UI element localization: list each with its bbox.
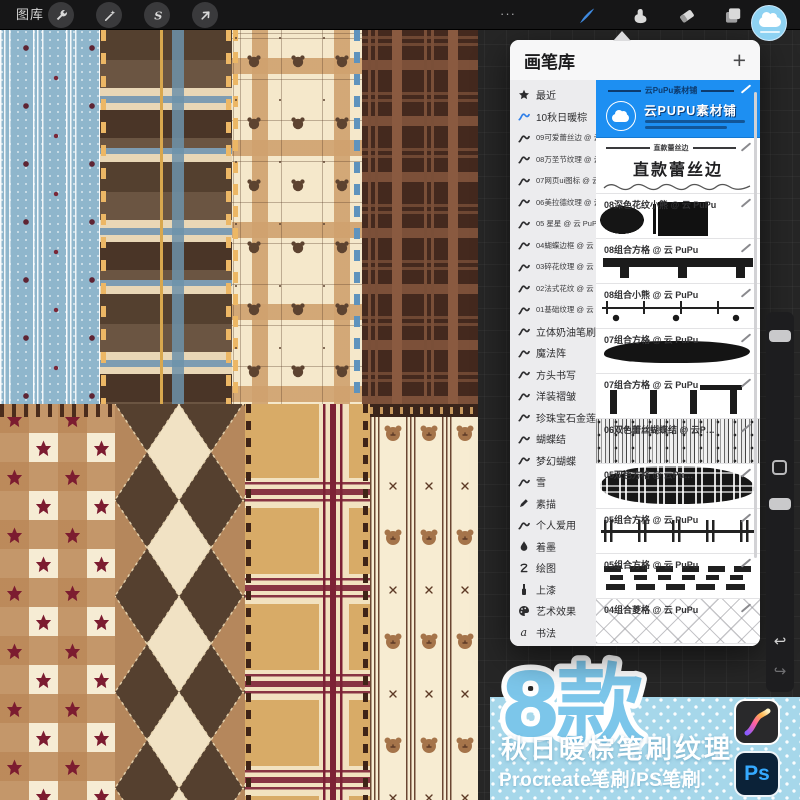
sidebar-item[interactable]: 立体奶油笔刷 xyxy=(510,321,596,343)
panel-body: 最近10秋日暖棕09可爱蕾丝边 @ 云 Pu…08万圣节纹理 @ 云 Pu…07… xyxy=(510,80,760,646)
fabric-tile-blue-lace-ribbon xyxy=(0,30,100,404)
sidebar-item-label: 雪 xyxy=(536,474,546,489)
sidebar-item[interactable]: 03碎花纹理 @ 云 PuPu xyxy=(510,256,596,278)
canvas[interactable] xyxy=(0,30,478,800)
redo-icon[interactable]: ↪ xyxy=(766,662,794,680)
bear-stripe-pattern-overlay xyxy=(370,404,478,800)
top-toolbar: 图库 S ··· xyxy=(0,0,800,30)
sidebar-item-label: 素描 xyxy=(536,496,556,511)
modify-button[interactable] xyxy=(772,460,787,475)
sidebar-item[interactable]: 素描 xyxy=(510,493,596,515)
featured-name: 云PUPU素材铺 xyxy=(644,100,737,119)
fabric-tile-tan-burgundy-plaid xyxy=(245,404,370,800)
brush-card[interactable]: 08组合小熊 @ 云 PuPu xyxy=(596,284,760,329)
brush-icon xyxy=(518,325,530,337)
sidebar-item-label: 书法 xyxy=(536,625,556,640)
sidebar-item-label: 最近 xyxy=(536,87,556,102)
sidebar-item-label: 10秋日暖棕 xyxy=(536,109,587,124)
ps-label: Ps xyxy=(744,762,770,786)
cloud-logo-text-line xyxy=(760,31,780,33)
sidebar-item[interactable]: 06美拉德纹理 @ 云 Pu… xyxy=(510,192,596,214)
featured-fineprint-line xyxy=(645,120,745,123)
lace-stroke-preview xyxy=(602,179,754,191)
brush-size-slider[interactable] xyxy=(769,330,791,342)
sidebar-item-label: 06美拉德纹理 @ 云 Pu… xyxy=(536,197,596,208)
sidebar-item[interactable]: 09可爱蕾丝边 @ 云 Pu… xyxy=(510,127,596,149)
selection-icon[interactable]: S xyxy=(144,2,170,28)
sidebar-item-label: 02法式花纹 @ 云 PuPu xyxy=(536,283,596,294)
brush-card-title: 06双色蕾丝蝴蝶结 @ 云P… xyxy=(604,423,715,436)
sidebar-item[interactable]: 07网页ui图标 @ 云 Pu… xyxy=(510,170,596,192)
brush-tool-icon[interactable] xyxy=(576,5,596,25)
sidebar-item[interactable]: 绘图 xyxy=(510,557,596,579)
svg-text:S: S xyxy=(154,8,162,22)
brush-icon xyxy=(518,390,530,402)
actions-wrench-icon[interactable] xyxy=(48,2,74,28)
brush-sidebar: 最近10秋日暖棕09可爱蕾丝边 @ 云 Pu…08万圣节纹理 @ 云 Pu…07… xyxy=(510,80,596,646)
smudge-tool-icon[interactable] xyxy=(630,5,650,25)
sidebar-item-label: 立体奶油笔刷 xyxy=(536,324,596,339)
brush-icon xyxy=(518,175,530,187)
brush-card[interactable]: 06双色蕾丝蝴蝶结 @ 云P… xyxy=(596,419,760,464)
sidebar-item-label: 魔法阵 xyxy=(536,345,566,360)
star-pattern-overlay xyxy=(0,404,115,800)
brush-card-title: 07组合方格 @ 云 PuPu xyxy=(604,378,698,391)
sidebar-item[interactable]: 10秋日暖棕 xyxy=(510,106,596,128)
lace-top-line: 直款蕾丝边 xyxy=(596,138,760,153)
photoshop-app-icon: Ps xyxy=(734,751,780,797)
sidebar-item-label: 艺术效果 xyxy=(536,603,576,618)
brush-list: 云PuPu素材铺云PUPU素材铺直款蕾丝边直款蕾丝边08深色花纹小熊 @ 云 P… xyxy=(596,80,760,646)
sidebar-item[interactable]: 雪 xyxy=(510,471,596,493)
brush-icon xyxy=(518,476,530,488)
calligraphy-icon xyxy=(518,626,530,638)
fabric-tile-brown-blue-stripe-plaid xyxy=(100,30,232,404)
brush-icon xyxy=(518,239,530,251)
sidebar-item-label: 09可爱蕾丝边 @ 云 Pu… xyxy=(536,132,596,143)
brush-card[interactable]: 05组合方格 @ 云 PuPu xyxy=(596,554,760,599)
cloud-icon xyxy=(759,17,781,27)
brush-icon xyxy=(518,368,530,380)
brush-icon xyxy=(518,519,530,531)
bear-pattern-overlay xyxy=(232,30,362,404)
panel-scrollbar[interactable] xyxy=(754,92,757,558)
sidebar-item-label: 08万圣节纹理 @ 云 Pu… xyxy=(536,154,596,165)
undo-icon[interactable]: ↩ xyxy=(766,632,794,650)
featured-title: 云PuPu素材铺 xyxy=(645,85,697,96)
brush-card[interactable]: 08深色花纹小熊 @ 云 PuPu xyxy=(596,194,760,239)
sidebar-item-label: 04蝴蝶边框 @ 云 PuPu xyxy=(536,240,596,251)
eraser-tool-icon[interactable] xyxy=(676,5,696,25)
cloud-logo xyxy=(606,101,636,131)
ink-icon xyxy=(518,540,530,552)
brush-card[interactable]: 05组合方格 @ 云 PuPu xyxy=(596,509,760,554)
brush-card[interactable]: 云PuPu素材铺云PUPU素材铺 xyxy=(596,80,760,138)
sidebar-controls: ↩ ↪ xyxy=(766,312,794,692)
brush-card[interactable]: 05双色方格 @ 云Pu… xyxy=(596,464,760,509)
brush-icon xyxy=(518,196,530,208)
panel-title: 画笔库 xyxy=(524,48,575,73)
brush-card-title: 08深色花纹小熊 @ 云 PuPu xyxy=(604,198,716,211)
sidebar-item[interactable]: 04蝴蝶边框 @ 云 PuPu xyxy=(510,235,596,257)
fabric-tile-bear-stripes xyxy=(370,404,478,800)
brush-card-title: 08组合方格 @ 云 PuPu xyxy=(604,243,698,256)
scribble-icon xyxy=(518,562,530,574)
paint-icon xyxy=(518,583,530,595)
brush-card[interactable]: 04组合菱格 @ 云 PuPu xyxy=(596,599,760,644)
popover-arrow xyxy=(613,31,631,41)
sidebar-item[interactable]: 02法式花纹 @ 云 PuPu xyxy=(510,278,596,300)
brush-card-title: 07组合方格 @ 云 PuPu xyxy=(604,333,698,346)
brush-icon xyxy=(518,261,530,273)
procreate-brushstroke xyxy=(747,711,768,733)
featured-fineprint-line xyxy=(645,126,727,129)
brush-card-title: 05双色方格 @ 云Pu… xyxy=(604,468,693,481)
sidebar-item-label: 05 星星 @ 云 PuPu 1 xyxy=(536,218,596,229)
brush-card-title: 05组合方格 @ 云 PuPu xyxy=(604,513,698,526)
brush-card-title: 05组合方格 @ 云 PuPu xyxy=(604,558,698,571)
brush-card-title: 04组合菱格 @ 云 PuPu xyxy=(604,603,698,616)
add-brush-button[interactable]: + xyxy=(733,50,746,70)
sidebar-item[interactable]: 着墨 xyxy=(510,536,596,558)
featured-top-line: 云PuPu素材铺 xyxy=(596,80,760,96)
sidebar-item[interactable]: 书法 xyxy=(510,622,596,644)
lace-big-title: 直款蕾丝边 xyxy=(596,156,760,180)
brush-card[interactable]: 07组合方格 @ 云 PuPu xyxy=(596,374,760,419)
sidebar-item[interactable]: 08万圣节纹理 @ 云 Pu… xyxy=(510,149,596,171)
procreate-app-icon xyxy=(734,699,780,745)
brush-icon xyxy=(518,153,530,165)
brush-icon xyxy=(518,132,530,144)
sidebar-item[interactable]: 方头书写 xyxy=(510,364,596,386)
brush-library-panel: 画笔库 + 最近10秋日暖棕09可爱蕾丝边 @ 云 Pu…08万圣节纹理 @ 云… xyxy=(510,40,760,646)
brush-card[interactable]: 08组合方格 @ 云 PuPu xyxy=(596,239,760,284)
sidebar-item[interactable]: 珍珠宝石金莲 xyxy=(510,407,596,429)
sidebar-item-label: 梦幻蝴蝶 xyxy=(536,453,576,468)
brush-opacity-slider[interactable] xyxy=(769,498,791,510)
layers-icon[interactable] xyxy=(722,5,742,25)
gallery-button[interactable]: 图库 xyxy=(16,0,44,30)
sidebar-item-label: 洋装褶皱 xyxy=(536,388,576,403)
pencil-icon xyxy=(518,497,530,509)
palette-icon xyxy=(518,605,530,617)
brush-icon xyxy=(518,110,530,122)
brush-card[interactable]: 直款蕾丝边直款蕾丝边 xyxy=(596,138,760,194)
color-well-cloud-logo[interactable] xyxy=(751,5,787,41)
brush-icon xyxy=(518,304,530,316)
star-icon xyxy=(518,89,530,101)
sidebar-item[interactable]: 个人爱用 xyxy=(510,514,596,536)
brush-card[interactable]: 07组合方格 @ 云 PuPu xyxy=(596,329,760,374)
sidebar-item-label: 方头书写 xyxy=(536,367,576,382)
fabric-tile-gingham-stars xyxy=(0,404,115,800)
sidebar-item[interactable]: 艺术效果 xyxy=(510,600,596,622)
sidebar-item[interactable]: 蝴蝶结 xyxy=(510,428,596,450)
sidebar-item-label: 上漆 xyxy=(536,582,556,597)
sidebar-item[interactable]: 洋装褶皱 xyxy=(510,385,596,407)
promo-subtitle: Procreate笔刷/PS笔刷 xyxy=(499,765,701,792)
sidebar-item[interactable]: 01基础纹理 @ 云 PuPu xyxy=(510,299,596,321)
sidebar-item-label: 珍珠宝石金莲 xyxy=(536,410,596,425)
sidebar-item-label: 03碎花纹理 @ 云 PuPu xyxy=(536,261,596,272)
brush-card-title: 08组合小熊 @ 云 PuPu xyxy=(604,288,698,301)
adjustments-wand-icon[interactable] xyxy=(96,2,122,28)
sidebar-item[interactable]: 最近 xyxy=(510,84,596,106)
brush-icon xyxy=(518,218,530,230)
fabric-tile-dark-chocolate-plaid xyxy=(362,30,478,404)
sidebar-item-label: 07网页ui图标 @ 云 Pu… xyxy=(536,175,596,186)
sidebar-item[interactable]: 上漆 xyxy=(510,579,596,601)
brush-icon xyxy=(518,282,530,294)
sidebar-item[interactable]: 魔法阵 xyxy=(510,342,596,364)
transform-arrow-icon[interactable] xyxy=(192,2,218,28)
lace-small-title: 直款蕾丝边 xyxy=(654,143,689,153)
panel-header: 画笔库 + xyxy=(510,40,760,80)
brush-icon xyxy=(518,347,530,359)
sidebar-item-label: 着墨 xyxy=(536,539,556,554)
brush-icon xyxy=(518,454,530,466)
fabric-tile-cream-bear-grid xyxy=(232,30,362,404)
more-options-icon[interactable]: ··· xyxy=(500,0,516,28)
brush-icon xyxy=(518,433,530,445)
sidebar-item[interactable]: 05 星星 @ 云 PuPu 1 xyxy=(510,213,596,235)
sidebar-item-label: 个人爱用 xyxy=(536,517,576,532)
promo-title: 秋日暖棕笔刷纹理 xyxy=(501,729,733,766)
sidebar-item-label: 01基础纹理 @ 云 PuPu xyxy=(536,304,596,315)
sidebar-item-label: 绘图 xyxy=(536,560,556,575)
fabric-tile-argyle xyxy=(115,404,245,800)
sidebar-item-label: 蝴蝶结 xyxy=(536,431,566,446)
argyle-pattern-overlay xyxy=(115,404,245,800)
brush-icon xyxy=(518,411,530,423)
sidebar-item[interactable]: 梦幻蝴蝶 xyxy=(510,450,596,472)
